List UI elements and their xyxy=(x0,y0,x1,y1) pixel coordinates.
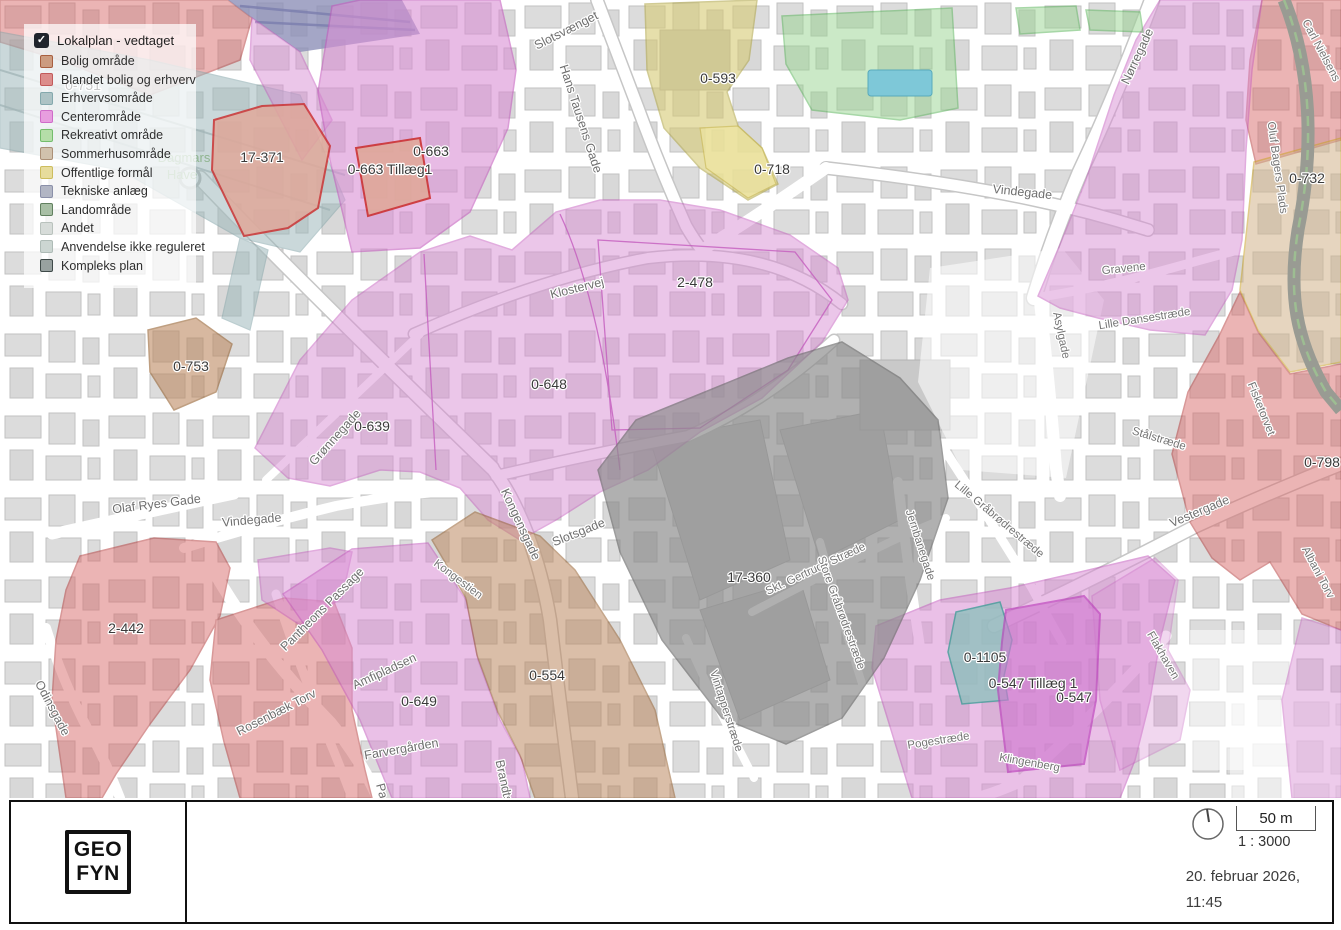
plan-label: 0-732 xyxy=(1289,170,1325,186)
legend-item: Rekreativt område xyxy=(40,128,186,142)
legend-checkbox[interactable]: ✓ xyxy=(34,33,49,48)
plan-label: 17-360 xyxy=(727,569,771,585)
footer-logo-cell: GEO FYN xyxy=(11,802,187,922)
scale-ratio: 1 : 3000 xyxy=(1238,834,1316,850)
legend-panel: ✓ Lokalplan - vedtaget Bolig område Blan… xyxy=(24,24,196,288)
legend-swatch xyxy=(40,259,53,272)
legend-swatch xyxy=(40,73,53,86)
legend-item-label: Anvendelse ikke reguleret xyxy=(61,240,205,254)
swimming-pool xyxy=(868,70,932,96)
legend-swatch xyxy=(40,92,53,105)
legend-item-label: Landområde xyxy=(61,203,131,217)
legend-item: Sommerhusområde xyxy=(40,147,186,161)
legend-item-label: Offentlige formål xyxy=(61,166,152,180)
north-arrow-icon xyxy=(1190,806,1226,842)
legend-item: Anvendelse ikke reguleret xyxy=(40,240,186,254)
legend-swatch xyxy=(40,129,53,142)
scale-bar: 50 m xyxy=(1236,806,1316,831)
legend-swatch xyxy=(40,55,53,68)
plan-label: 17-371 xyxy=(240,149,284,165)
legend-item: Andet xyxy=(40,221,186,235)
legend-item-label: Blandet bolig og erhverv xyxy=(61,73,196,87)
logo-text-line1: GEO xyxy=(74,838,122,862)
plan-label: 0-554 xyxy=(529,667,565,683)
legend-item-label: Centerområde xyxy=(61,110,141,124)
legend-item: Blandet bolig og erhverv xyxy=(40,73,186,87)
legend-swatch xyxy=(40,185,53,198)
scale-bar-label: 50 m xyxy=(1259,810,1292,827)
legend-item: Centerområde xyxy=(40,110,186,124)
legend-swatch xyxy=(40,147,53,160)
legend-swatch xyxy=(40,203,53,216)
legend-item-label: Bolig område xyxy=(61,54,135,68)
legend-item-label: Sommerhusområde xyxy=(61,147,171,161)
plan-label: 0-663 xyxy=(413,143,449,159)
legend-item-label: Erhvervsområde xyxy=(61,91,153,105)
plan-label: 0-639 xyxy=(354,418,390,434)
legend-title: Lokalplan - vedtaget xyxy=(57,33,174,48)
geofyn-logo: GEO FYN xyxy=(65,830,131,894)
plan-label: 0-718 xyxy=(754,161,790,177)
legend-item-label: Rekreativt område xyxy=(61,128,163,142)
plan-label: 0-547 xyxy=(1056,689,1092,705)
plan-label: 0-649 xyxy=(401,693,437,709)
map-time: 11:45 xyxy=(1186,890,1300,916)
plan-label: 0-1105 xyxy=(964,649,1007,665)
legend-item-label: Andet xyxy=(61,221,94,235)
legend-swatch xyxy=(40,240,53,253)
legend-item: Offentlige formål xyxy=(40,166,186,180)
plan-label: 0-663 Tillæg1 xyxy=(348,161,433,177)
legend-swatch xyxy=(40,166,53,179)
legend-item-label: Tekniske anlæg xyxy=(61,184,148,198)
plan-label: 0-593 xyxy=(700,70,736,86)
legend-swatch xyxy=(40,222,53,235)
legend-item: Bolig område xyxy=(40,54,186,68)
map-date: 20. februar 2026, xyxy=(1186,864,1300,890)
legend-item: Tekniske anlæg xyxy=(40,184,186,198)
map-datetime: 20. februar 2026, 11:45 xyxy=(1186,864,1300,917)
plan-label: 0-753 xyxy=(173,358,209,374)
legend-swatch xyxy=(40,110,53,123)
logo-text-line2: FYN xyxy=(76,862,120,886)
footer-info-cell: 50 m 1 : 3000 20. februar 2026, 11:45 xyxy=(187,802,1332,922)
legend-item-label: Kompleks plan xyxy=(61,259,143,273)
legend-item: Kompleks plan xyxy=(40,259,186,273)
footer-bar: GEO FYN 50 m 1 : 3000 20. februar 2026, xyxy=(0,798,1341,930)
plan-label: 2-478 xyxy=(677,274,713,290)
plan-label: 0-648 xyxy=(531,376,567,392)
legend-item: Erhvervsområde xyxy=(40,91,186,105)
plan-label: 2-442 xyxy=(108,620,144,636)
map-svg: Dagmars Have Slotsvænget Hans Tausens Ga… xyxy=(0,0,1341,798)
legend-item: Landområde xyxy=(40,203,186,217)
plan-label: 0-798 xyxy=(1304,454,1340,470)
map-canvas[interactable]: Dagmars Have Slotsvænget Hans Tausens Ga… xyxy=(0,0,1341,798)
